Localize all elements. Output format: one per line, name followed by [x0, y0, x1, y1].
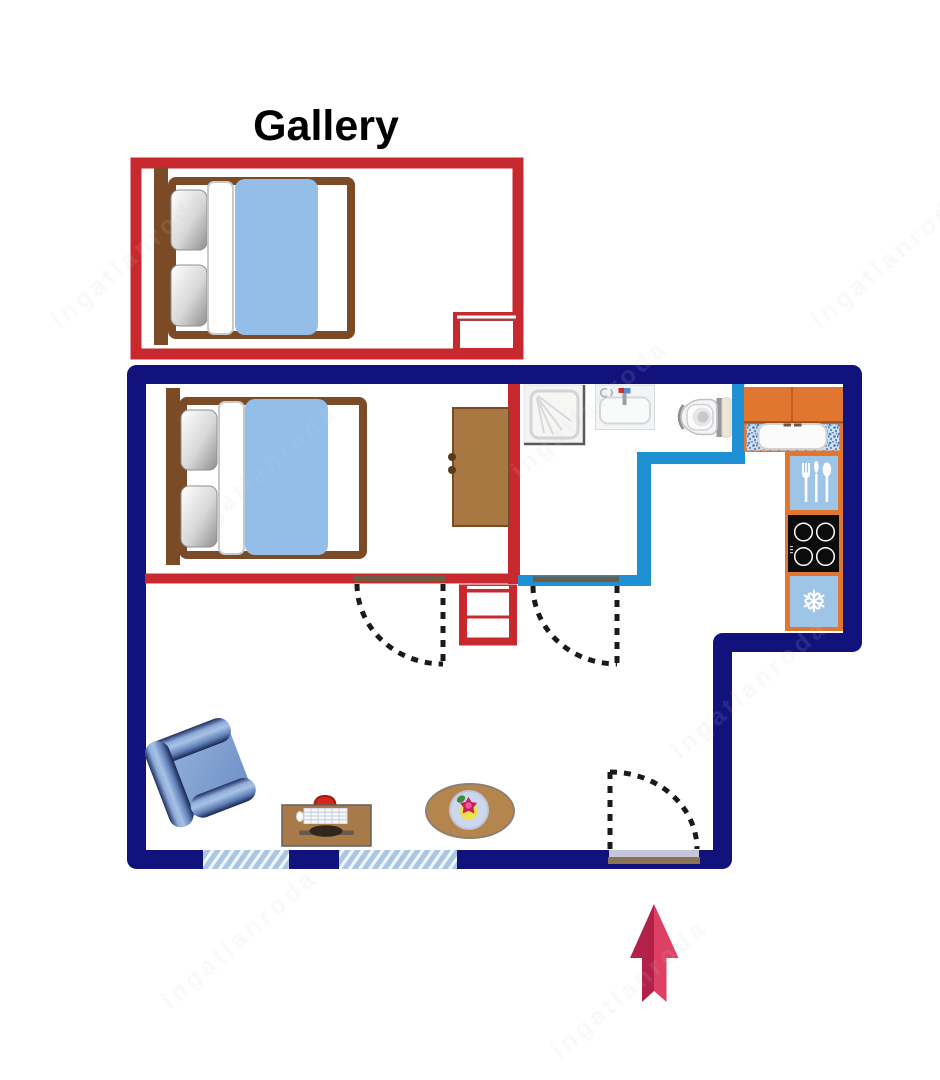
svg-text:Gallery: Gallery [253, 102, 399, 150]
